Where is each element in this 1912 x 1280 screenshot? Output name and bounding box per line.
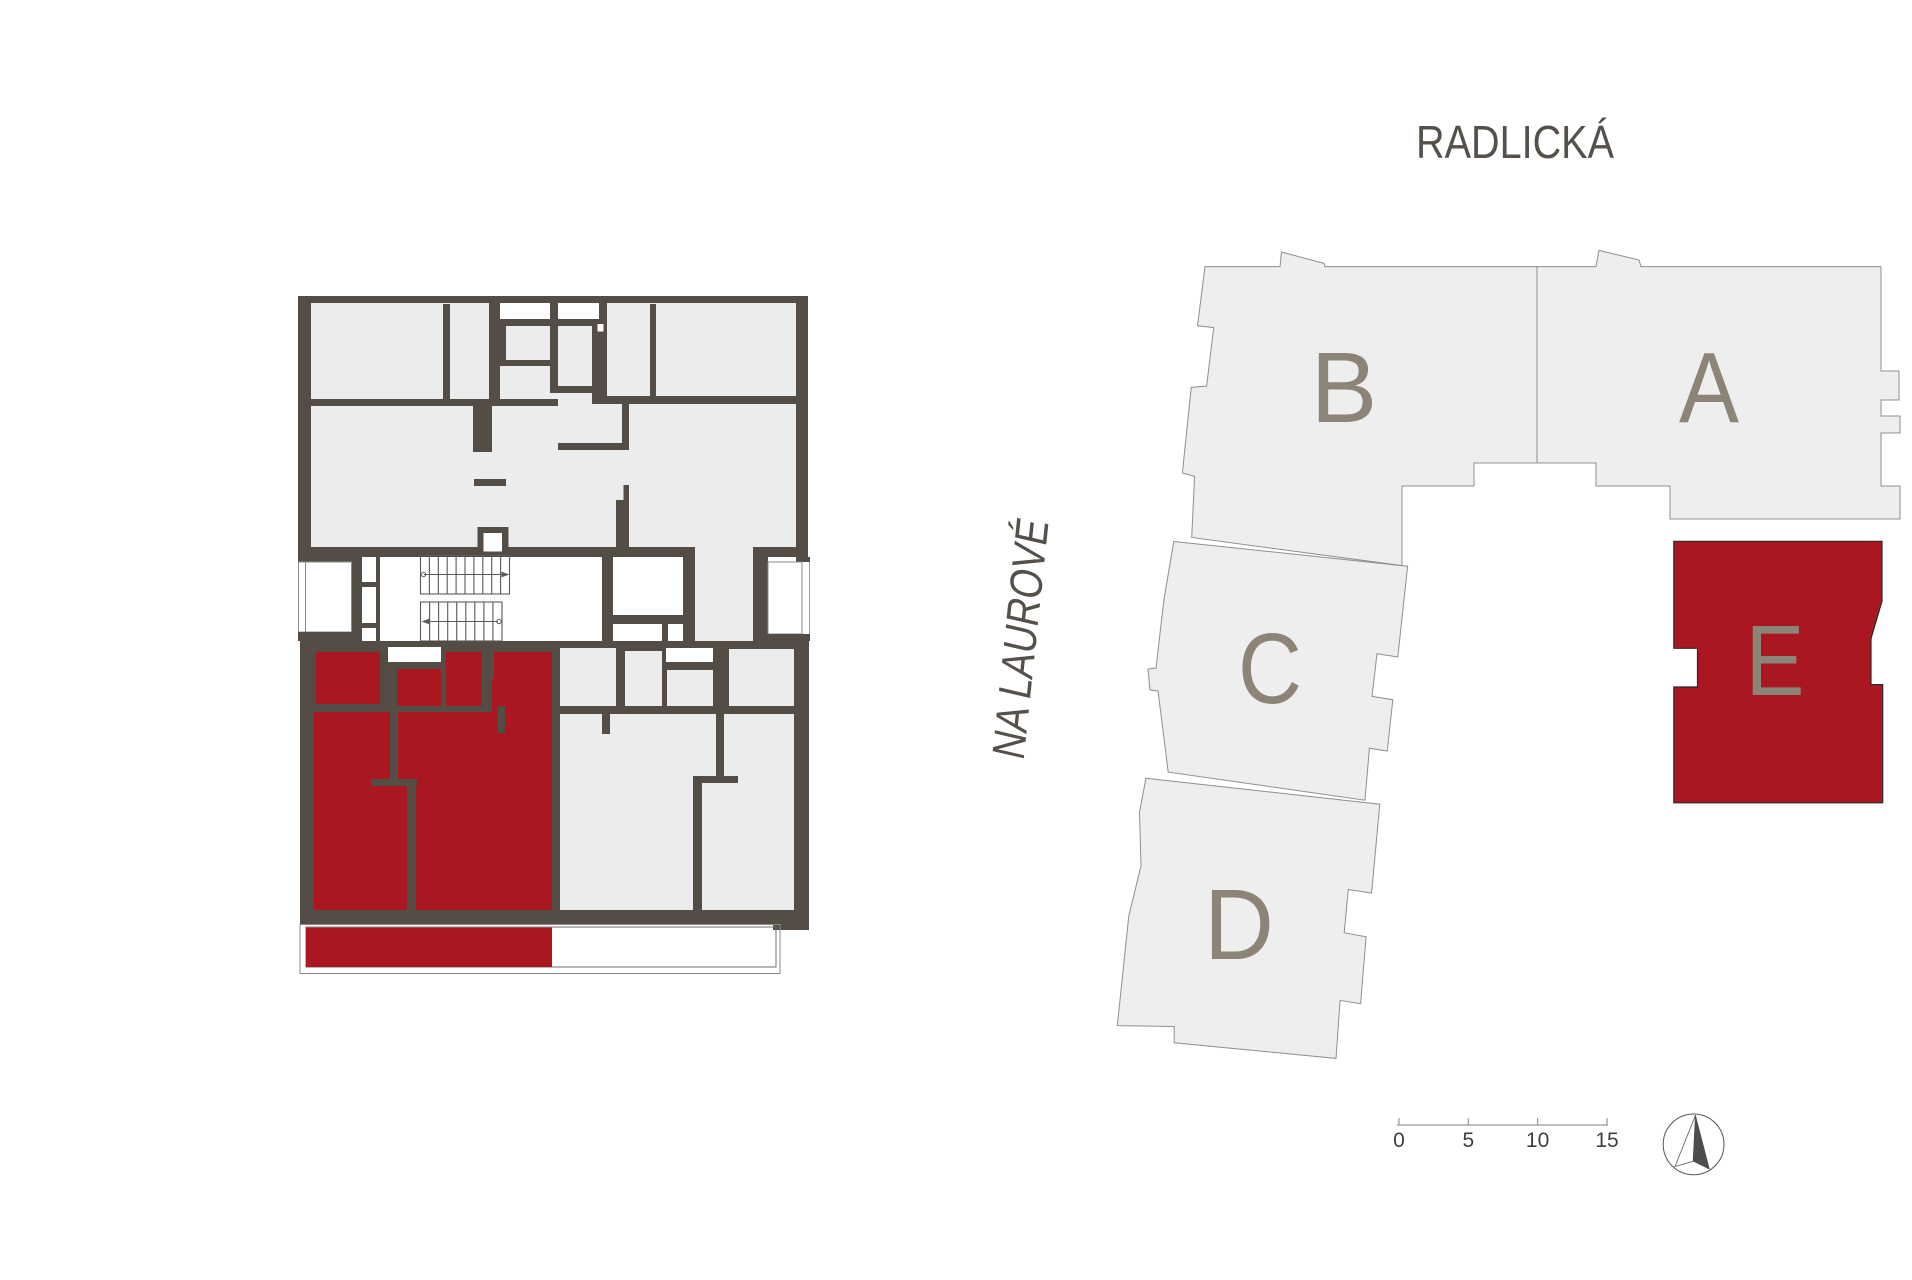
svg-text:D: D: [1204, 869, 1274, 981]
svg-text:C: C: [1238, 613, 1302, 725]
svg-text:5: 5: [1462, 1129, 1474, 1152]
svg-text:10: 10: [1526, 1129, 1549, 1152]
svg-text:B: B: [1311, 332, 1378, 444]
svg-text:0: 0: [1393, 1129, 1405, 1152]
svg-text:A: A: [1679, 332, 1739, 444]
svg-text:RADLICKÁ: RADLICKÁ: [1416, 116, 1614, 168]
svg-text:15: 15: [1595, 1129, 1618, 1152]
svg-text:E: E: [1746, 605, 1805, 717]
